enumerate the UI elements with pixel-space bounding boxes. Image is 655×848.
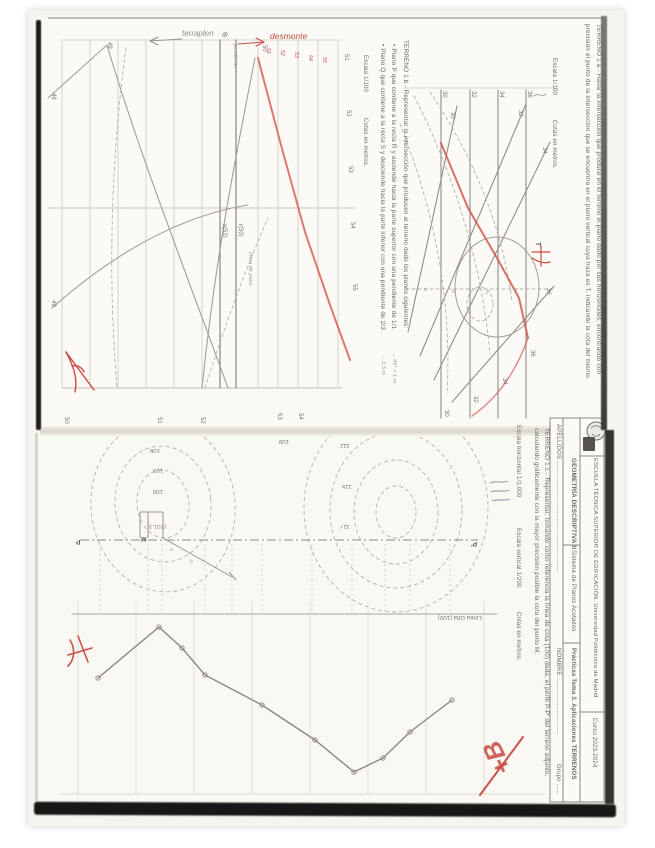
contour-label: 103 [153, 467, 163, 473]
drawing-label: 32 [470, 91, 476, 98]
drawing-label: 53 [276, 413, 282, 420]
scanned-worksheet-photo: terraplen desmonte TERRENO 1.a.- Hallar … [0, 0, 655, 848]
circled-plus-mark: ⊕ [221, 31, 228, 39]
drawing-label: 52 [279, 50, 284, 56]
contour-label: 106 [150, 447, 160, 453]
drawing-label: 53 [347, 166, 353, 173]
drawing-label: 36 [529, 350, 535, 357]
drawing-label: 51 [156, 417, 162, 424]
line-s52-label: s(52) [221, 224, 227, 238]
point-p-prime-label: P' [471, 539, 477, 546]
drawing-label: 54 [297, 413, 303, 420]
drawing-label: 34 [501, 378, 507, 385]
line-r50-label: r(50) [237, 224, 243, 237]
page-edge-shadow-left [36, 20, 41, 430]
drawing-labels-layer: 4849495051525354555051525354s(52)r(50)51… [0, 0, 655, 848]
drawing-label: 49 [106, 42, 112, 49]
point-m-label: M [141, 534, 147, 541]
page-edge-shadow-bottom [34, 802, 616, 818]
drawing-label: 52 [199, 417, 205, 424]
page-edge-right-top [601, 16, 607, 430]
drawing-label: b [190, 560, 193, 565]
contour-label: 109 [279, 438, 289, 444]
drawing-label: 34 [498, 91, 504, 98]
point-p-label: P [76, 537, 81, 544]
linea-de-paso-note: línea de paso [246, 252, 252, 286]
drawing-label: 51 [265, 48, 270, 54]
contour-label: 115 [342, 483, 352, 489]
page-edge-top [48, 17, 602, 19]
linea-cota-100-label: Línea cota (100) [438, 614, 482, 620]
contour-label: 100 [153, 488, 163, 494]
page-edge-left-bottom [35, 433, 38, 801]
drawing-label: 55 [321, 57, 326, 63]
drawing-label: 52 [345, 110, 351, 117]
drawing-label: 30 [441, 91, 447, 98]
drawing-label: 49 [50, 300, 56, 307]
trace-t-label: T [534, 242, 541, 246]
page-edge-right-bottom [605, 430, 614, 804]
drawing-label: 32 [472, 396, 478, 403]
drawing-label: 48 [50, 93, 56, 100]
drawing-label: 34 [541, 147, 547, 154]
contour-label: 112 [340, 442, 350, 448]
drawing-label: c' [486, 291, 489, 296]
drawing-label: 54 [349, 222, 355, 229]
drawing-label: 30 [449, 112, 455, 119]
drawing-label: a [170, 548, 173, 553]
drawing-label: 36 [526, 91, 532, 98]
drawing-label: 32 [517, 110, 523, 117]
drawing-label: 30 [443, 410, 449, 417]
drawing-label: 53 [293, 52, 298, 58]
drawing-label: 50 [63, 417, 69, 424]
drawing-label: 51 [343, 54, 349, 61]
drawing-label: 36 [545, 288, 551, 295]
pendiente-note: pendiente [231, 44, 237, 69]
drawing-label: d' [514, 289, 518, 294]
drawing-label: 55 [351, 284, 357, 291]
cota-m-note: (101,3) [147, 523, 166, 529]
drawing-label: b' [452, 290, 456, 295]
drawing-label: a' [424, 288, 428, 293]
contour-label: 117 [340, 523, 350, 529]
drawing-label: 54 [307, 55, 312, 61]
